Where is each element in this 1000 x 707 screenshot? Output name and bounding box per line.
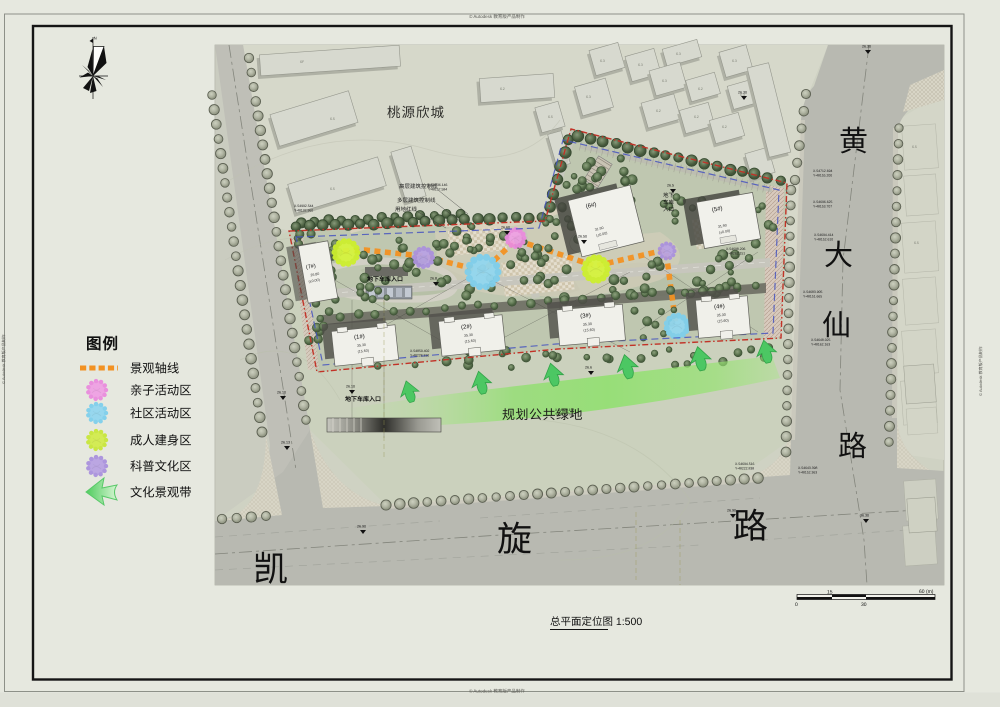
svg-text:26.5: 26.5 [667,184,674,188]
svg-text:景观轴线: 景观轴线 [130,362,179,376]
svg-text:地下: 地下 [663,192,675,199]
svg-text:X-54698.206: X-54698.206 [726,247,746,251]
svg-text:(4#): (4#) [714,303,725,311]
svg-text:文化景观带: 文化景观带 [130,486,192,500]
svg-text:路: 路 [733,507,768,546]
svg-text:多层建筑控制线: 多层建筑控制线 [397,197,436,204]
svg-text:0: 0 [795,602,798,608]
svg-text:6.2: 6.2 [500,87,505,91]
svg-text:科普文化区: 科普文化区 [130,460,192,474]
svg-text:26.30: 26.30 [738,91,747,95]
svg-text:Y-48151.665: Y-48151.665 [803,295,822,299]
svg-text:Y-48222.838: Y-48222.838 [735,467,754,471]
svg-text:大: 大 [824,240,853,272]
svg-text:凯: 凯 [253,550,288,589]
svg-text:X-54694.516: X-54694.516 [735,462,755,466]
svg-text:6.3: 6.3 [600,59,605,63]
svg-text:地下车库入口: 地下车库入口 [367,275,403,283]
svg-text:Y-48162.163: Y-48162.163 [811,343,830,347]
svg-text:6F: 6F [300,60,304,64]
svg-text:Y-48228.310: Y-48228.310 [410,354,429,358]
svg-text:6.5: 6.5 [912,145,917,149]
svg-text:6.2: 6.2 [698,87,703,91]
svg-text:6.3: 6.3 [638,63,643,67]
svg-text:X-54648.025: X-54648.025 [811,338,831,342]
svg-text:桃源欣城: 桃源欣城 [387,105,445,120]
svg-text:6.2: 6.2 [656,109,661,113]
svg-text:30: 30 [861,602,867,608]
svg-text:26.10: 26.10 [346,385,355,389]
svg-text:路: 路 [838,431,867,463]
svg-text:26.10: 26.10 [277,391,286,395]
svg-text:6.5: 6.5 [330,117,335,121]
svg-text:6.5: 6.5 [914,241,919,245]
svg-text:X-54736.146: X-54736.146 [428,183,448,187]
svg-text:© Autodesk 教育版产品制作: © Autodesk 教育版产品制作 [469,14,525,19]
svg-text:X-54643.398: X-54643.398 [798,466,818,470]
svg-text:26.8: 26.8 [430,277,437,281]
svg-text:Y-48152.363: Y-48152.363 [798,471,817,475]
svg-text:6.2: 6.2 [722,125,727,129]
svg-text:X-54992.544: X-54992.544 [294,204,314,208]
svg-text:车库: 车库 [663,199,675,206]
svg-text:35.30: 35.30 [583,322,592,327]
svg-text:X-54694.414: X-54694.414 [814,233,834,237]
svg-text:36.30: 36.30 [860,514,869,518]
svg-text:60 (m): 60 (m) [919,589,934,595]
svg-text:总平面定位图 1:500: 总平面定位图 1:500 [550,616,642,628]
svg-text:Y-48155.200: Y-48155.200 [813,174,832,178]
svg-text:© Autodesk 教育版产品制作: © Autodesk 教育版产品制作 [469,689,525,694]
svg-text:地下车库入口: 地下车库入口 [345,395,381,403]
svg-text:26.13: 26.13 [281,441,290,445]
svg-text:15: 15 [827,590,833,596]
svg-text:35.30: 35.30 [717,313,726,318]
svg-text:(3#): (3#) [580,312,591,320]
svg-text:黄: 黄 [839,126,868,158]
svg-text:入口: 入口 [663,206,674,213]
svg-text:旋: 旋 [497,520,532,559]
svg-text:X-54696.625: X-54696.625 [813,200,833,204]
svg-text:26.30: 26.30 [862,45,871,49]
svg-text:Y-48146.762: Y-48146.762 [555,413,574,417]
svg-text:X-54683.905: X-54683.905 [803,290,823,294]
svg-text:26.50: 26.50 [578,235,587,239]
svg-text:Y-48262.151: Y-48262.151 [726,252,745,256]
svg-text:Y-48132.960: Y-48132.960 [294,209,313,213]
svg-text:(1#): (1#) [354,333,365,341]
svg-text:6.3: 6.3 [732,59,737,63]
svg-text:6.3: 6.3 [676,52,681,56]
svg-text:社区活动区: 社区活动区 [130,407,192,421]
svg-text:26.60: 26.60 [501,226,510,230]
svg-text:Y-48153.707: Y-48153.707 [813,205,832,209]
svg-text:6.5: 6.5 [548,115,553,119]
svg-text:26.90: 26.90 [727,509,736,513]
svg-text:用地红线: 用地红线 [395,206,418,213]
svg-text:6.3: 6.3 [662,79,667,83]
svg-text:X-54829.158: X-54829.158 [555,408,575,412]
svg-text:成人建身区: 成人建身区 [130,434,192,448]
svg-text:X-54850.402: X-54850.402 [410,349,430,353]
svg-text:© Autodesk 教育版产品制作: © Autodesk 教育版产品制作 [978,346,983,396]
svg-text:26.6: 26.6 [585,366,592,370]
svg-text:X-54712.694: X-54712.694 [813,169,833,173]
svg-text:6.3: 6.3 [586,95,591,99]
svg-text:26.90: 26.90 [357,525,366,529]
svg-text:6.2: 6.2 [694,115,699,119]
svg-text:Y-48152.610: Y-48152.610 [814,238,833,242]
svg-text:(2#): (2#) [461,323,472,331]
svg-text:6.5: 6.5 [330,187,335,191]
svg-text:亲子活动区: 亲子活动区 [130,384,192,398]
svg-text:N: N [94,36,97,41]
svg-text:© Autodesk 教育版产品制作: © Autodesk 教育版产品制作 [1,334,6,384]
svg-text:Y-48157.584: Y-48157.584 [428,188,447,192]
svg-text:图例: 图例 [86,335,119,353]
